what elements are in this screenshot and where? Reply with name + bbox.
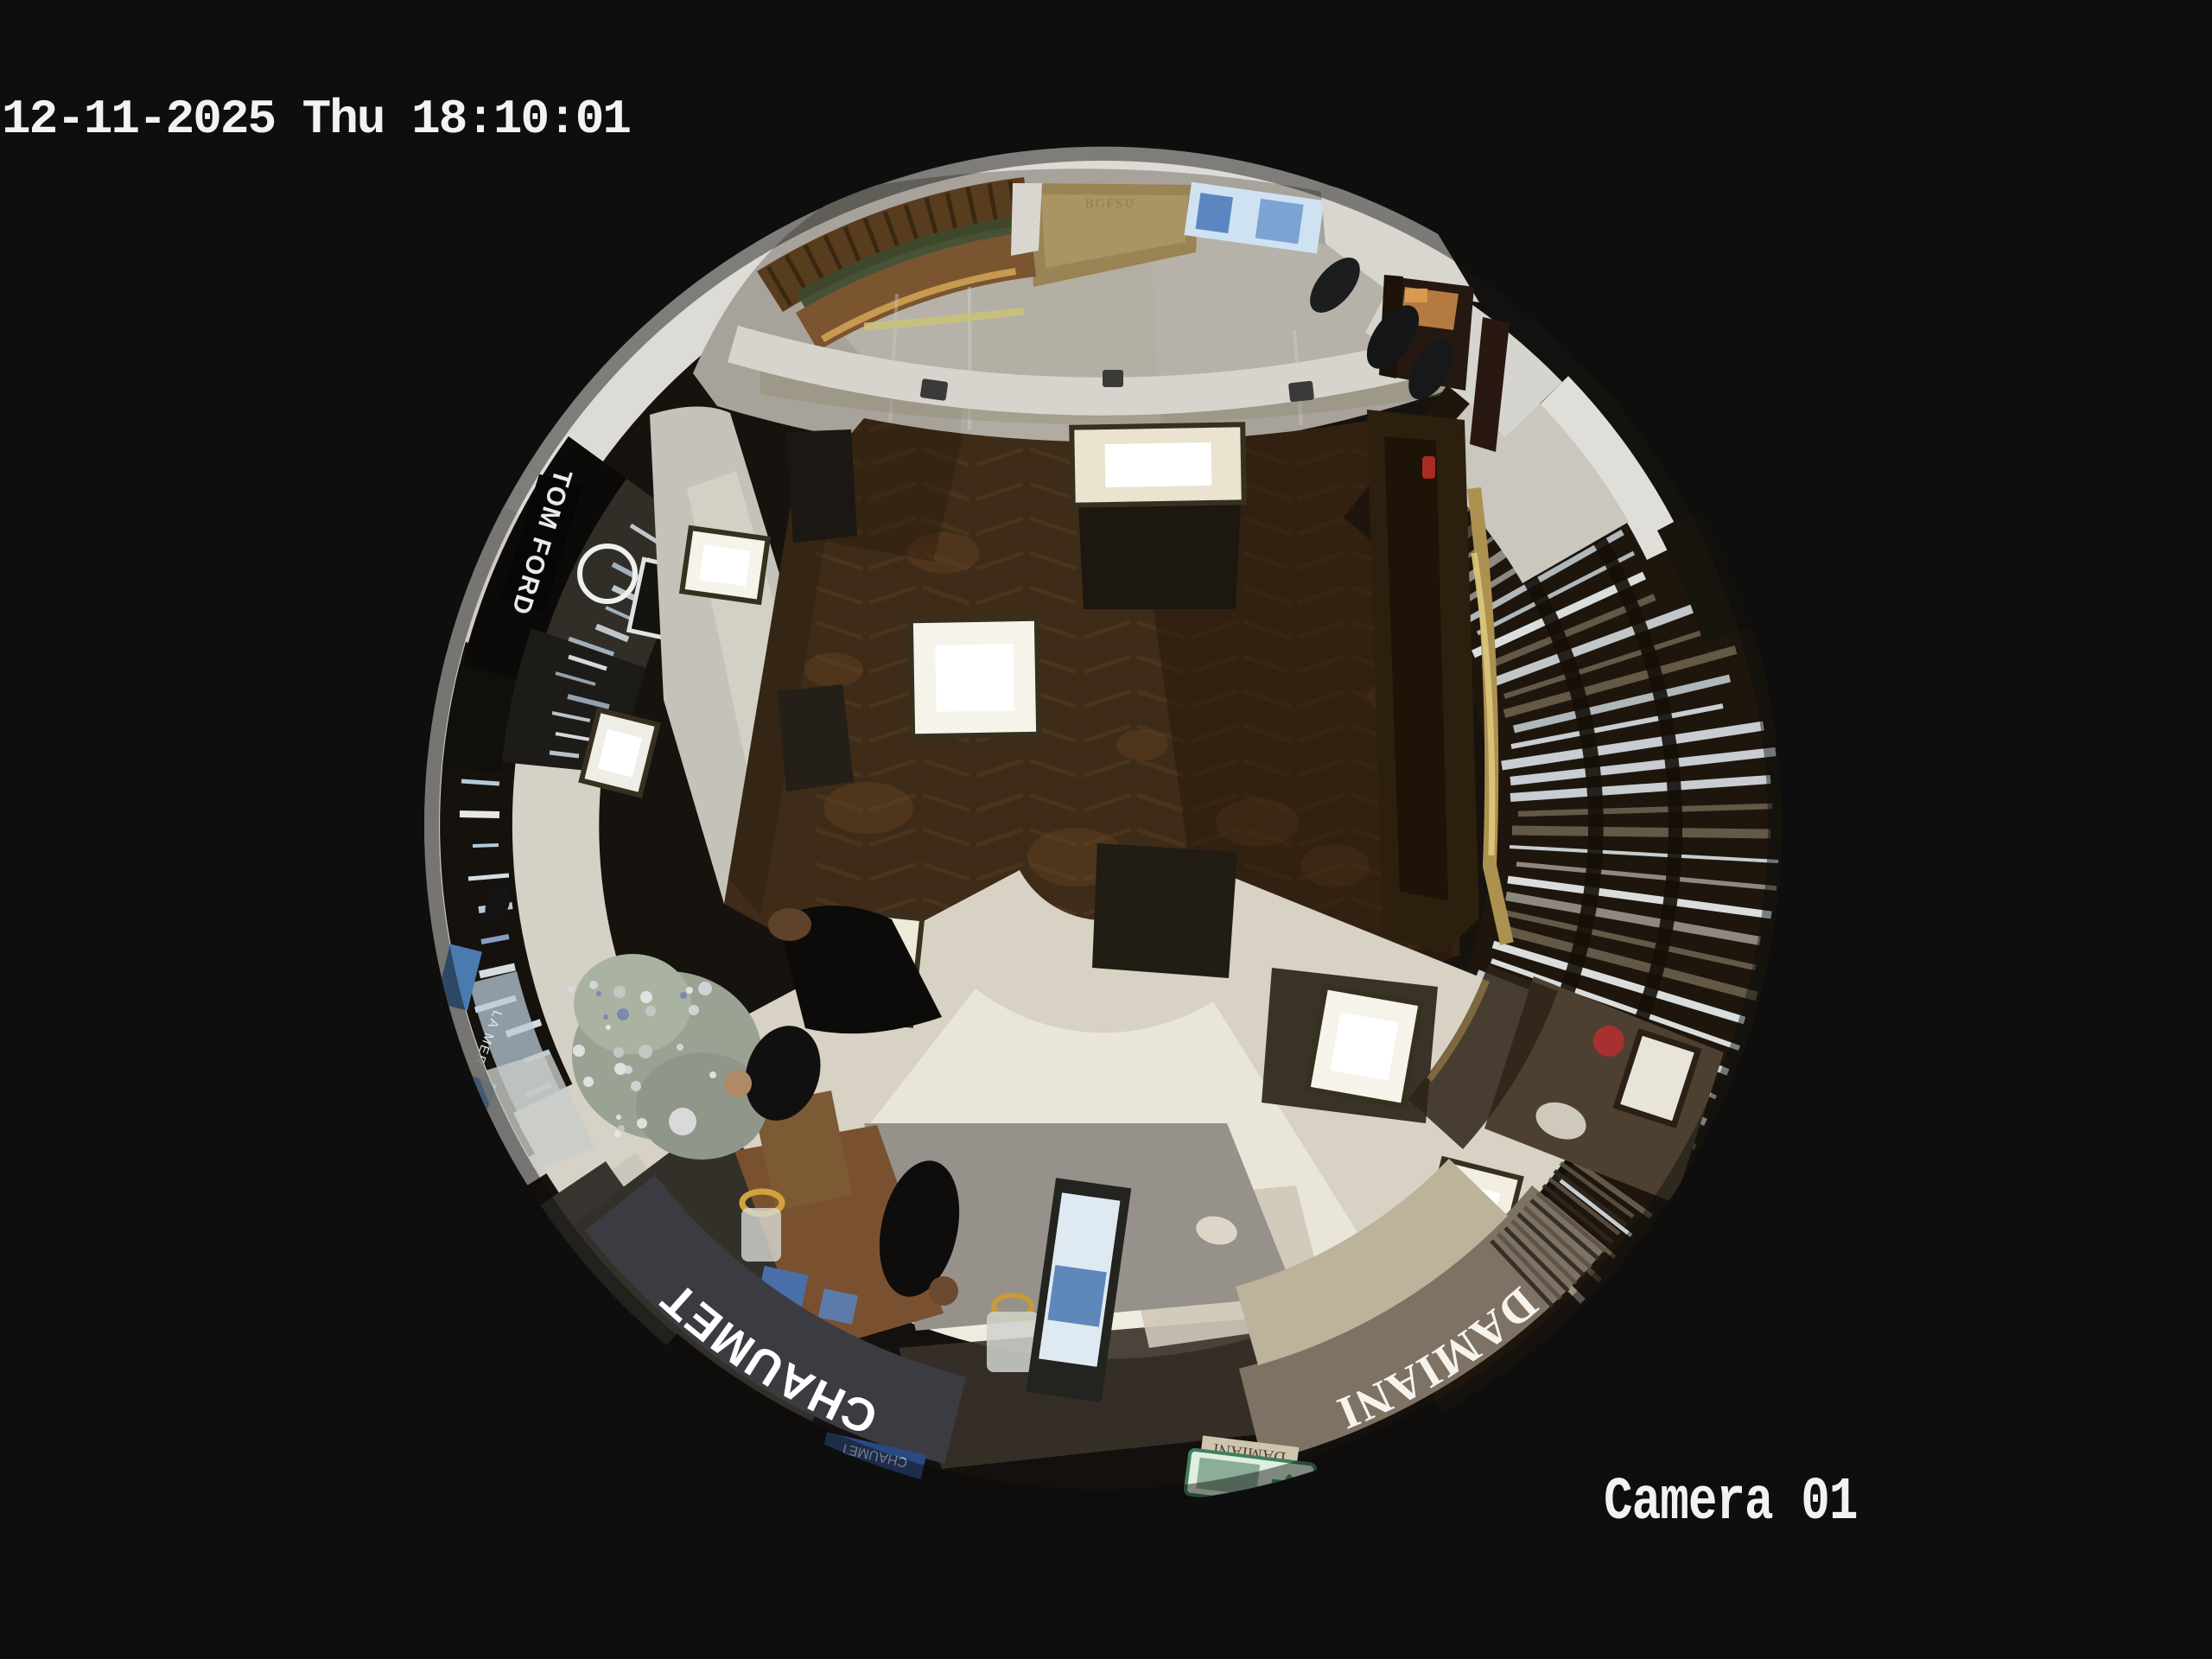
svg-text:BGFSU: BGFSU: [1085, 197, 1135, 211]
